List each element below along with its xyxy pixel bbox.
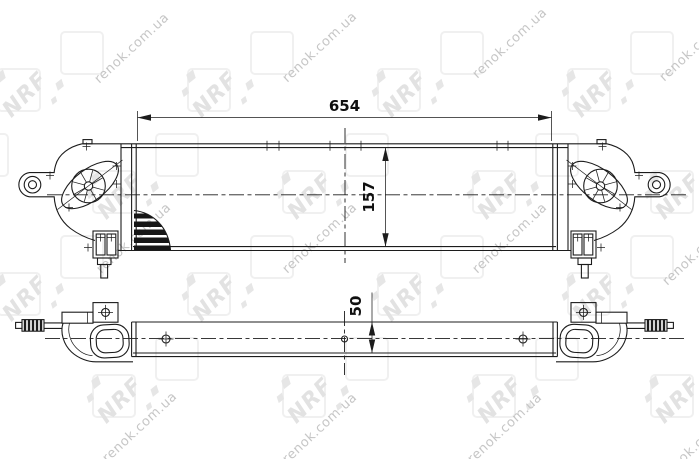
dimension-height: 157 <box>360 148 389 247</box>
dimension-depth: 50 <box>347 293 375 354</box>
striped-deflector <box>128 211 174 251</box>
dim-width-label: 654 <box>329 97 360 115</box>
bottom-view-core <box>45 311 684 375</box>
dimension-width: 654 <box>138 97 552 141</box>
dim-depth-label: 50 <box>347 296 365 317</box>
dim-height-label: 157 <box>360 181 378 212</box>
technical-drawing: 654 157 50 <box>0 0 699 459</box>
catalog-drawing-canvas: NRFNRFNRFNRFNRFNRFNRFNRFNRFNRFNRFNRFNRFN… <box>0 0 699 459</box>
